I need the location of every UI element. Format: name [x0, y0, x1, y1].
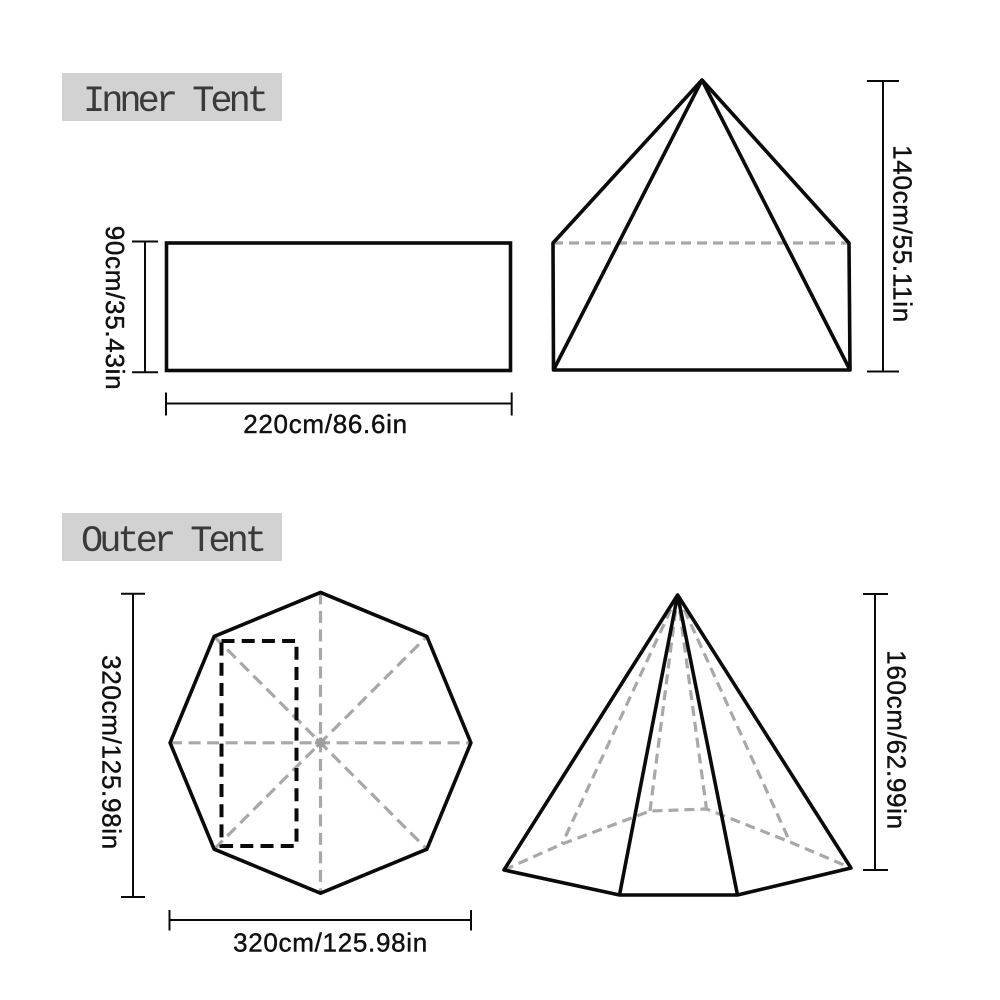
- svg-text:320cm/125.98in: 320cm/125.98in: [97, 655, 127, 850]
- svg-text:140cm/55.11in: 140cm/55.11in: [888, 145, 918, 323]
- svg-text:Outer Tent: Outer Tent: [81, 521, 264, 563]
- svg-text:320cm/125.98in: 320cm/125.98in: [233, 928, 428, 958]
- svg-text:Inner Tent: Inner Tent: [83, 81, 266, 123]
- svg-text:160cm/62.99in: 160cm/62.99in: [882, 650, 912, 830]
- svg-text:220cm/86.6in: 220cm/86.6in: [243, 409, 408, 439]
- svg-text:90cm/35.43in: 90cm/35.43in: [100, 226, 130, 391]
